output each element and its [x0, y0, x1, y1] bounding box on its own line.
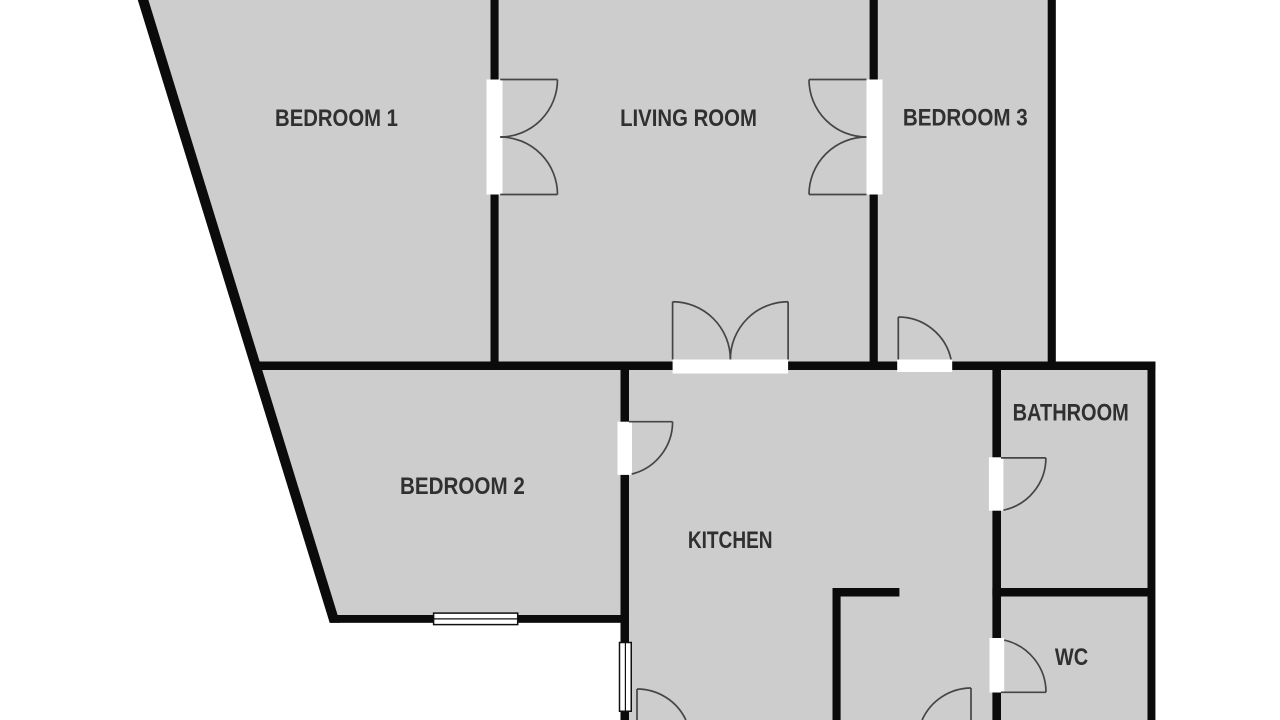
- svg-text:WC: WC: [1055, 643, 1088, 670]
- svg-text:BEDROOM 1: BEDROOM 1: [275, 104, 398, 131]
- svg-text:LIVING ROOM: LIVING ROOM: [620, 104, 757, 131]
- svg-text:BEDROOM 3: BEDROOM 3: [903, 104, 1028, 131]
- svg-text:BEDROOM 2: BEDROOM 2: [400, 473, 525, 500]
- svg-text:KITCHEN: KITCHEN: [688, 526, 773, 554]
- svg-text:BATHROOM: BATHROOM: [1013, 399, 1129, 426]
